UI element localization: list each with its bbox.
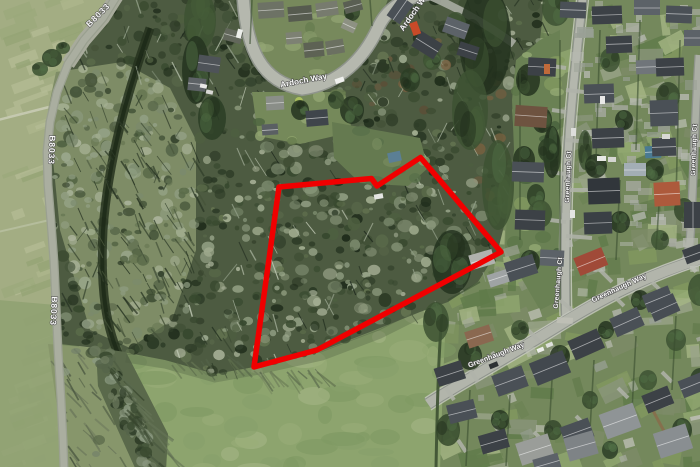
svg-text:B8033: B8033 [46, 135, 57, 165]
svg-text:B8033: B8033 [48, 296, 60, 326]
